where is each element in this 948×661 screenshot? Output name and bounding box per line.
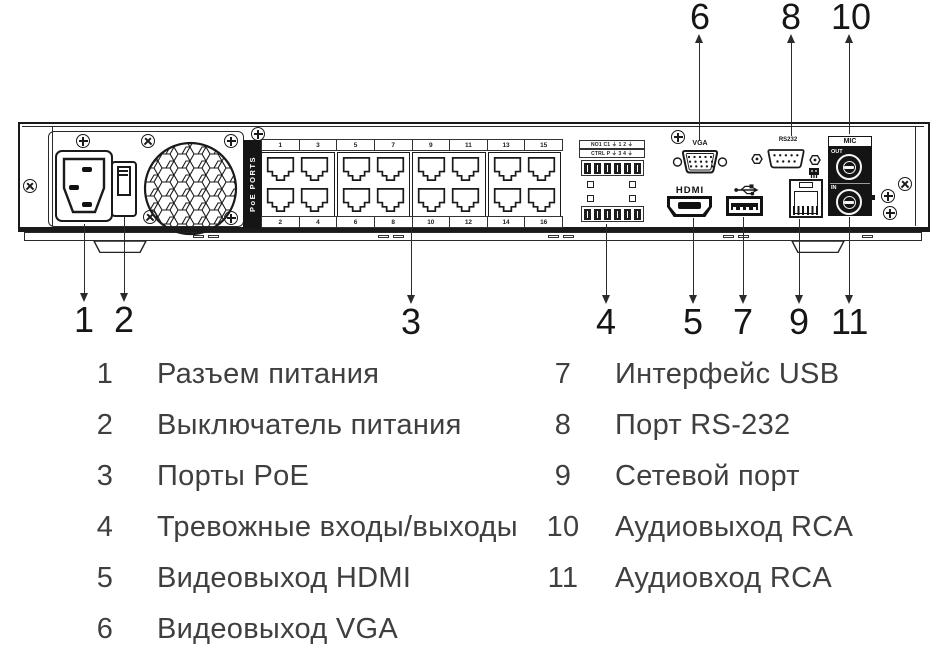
callout-number-9: 9 <box>781 305 817 339</box>
legend-number: 4 <box>85 512 125 542</box>
rs232-label: RS232 <box>770 137 806 143</box>
legend-number: 3 <box>85 461 125 491</box>
rj45-port-icon <box>493 187 522 213</box>
legend-row: 3 Порты PoE <box>85 461 518 491</box>
rj45-port-icon <box>342 156 371 182</box>
legend-label: Порты PoE <box>157 461 309 491</box>
mic-side-nub <box>870 195 875 200</box>
flange-dash <box>393 235 404 238</box>
legend-label: Порт RS-232 <box>615 410 790 440</box>
legend-label: Выключатель питания <box>157 410 462 440</box>
callout-line <box>124 217 125 294</box>
callout-line <box>849 217 850 296</box>
poe-port-label: 6 <box>336 216 375 228</box>
chassis-inner-top-line <box>22 126 924 127</box>
callout-number-7: 7 <box>725 305 761 339</box>
poe-port-label: 13 <box>487 139 526 151</box>
callout-number-11: 11 <box>831 305 867 339</box>
vga-connector <box>672 148 728 176</box>
callout-number-6: 6 <box>682 0 718 34</box>
legend-number: 11 <box>543 563 583 593</box>
legend-number: 8 <box>543 410 583 440</box>
poe-port-label: 8 <box>374 216 413 228</box>
poe-port-group <box>337 152 411 217</box>
poe-port-label: 14 <box>487 216 526 228</box>
rj45-port-icon <box>342 187 371 213</box>
callout-line <box>693 218 694 296</box>
flange-dash <box>563 235 574 238</box>
legend-row: 9 Сетевой порт <box>543 461 853 491</box>
callout-line <box>699 42 700 140</box>
legend-number: 10 <box>543 512 583 542</box>
poe-top-label-row: 1 3 5 7 9 11 13 15 <box>262 139 563 151</box>
usb-port-contacts <box>731 203 758 210</box>
alarm-terminal-strip-bottom <box>581 206 644 222</box>
callout-number-5: 5 <box>675 305 711 339</box>
poe-port-label: 11 <box>449 139 488 151</box>
legend-number: 7 <box>543 359 583 389</box>
poe-port-label: 7 <box>374 139 413 151</box>
hdmi-port <box>667 196 712 217</box>
rj45-port-icon <box>451 156 480 182</box>
legend-number: 1 <box>85 359 125 389</box>
legend-number: 6 <box>85 614 125 644</box>
rubber-foot <box>93 241 147 253</box>
legend-row: 11 Аудиовход RCA <box>543 563 853 593</box>
screw-icon <box>671 130 685 144</box>
audio-out-label: OUT <box>831 149 843 155</box>
rj45-port-icon <box>493 156 522 182</box>
network-icon <box>806 167 822 179</box>
poe-bottom-label-row: 2 4 6 8 10 12 14 16 <box>262 216 563 228</box>
poe-ports-label: PoE PORTS <box>248 156 257 212</box>
legend-row: 5 Видеовыход HDMI <box>85 563 518 593</box>
flange-dash <box>378 235 389 238</box>
alarm-terminal-strip-top <box>581 160 644 176</box>
legend-row: 8 Порт RS-232 <box>543 410 853 440</box>
mic-label: MIC <box>828 136 872 147</box>
power-pin-slot <box>69 185 79 190</box>
usb-port <box>726 196 763 216</box>
callout-number-2: 2 <box>106 303 142 337</box>
legend-number: 9 <box>543 461 583 491</box>
rj45-port-icon <box>300 156 329 182</box>
hdmi-port-slot <box>678 202 701 209</box>
legend-label: Тревожные входы/выходы <box>157 512 518 542</box>
callout-line <box>799 219 800 296</box>
ethernet-latch <box>799 182 813 188</box>
legend-label: Интерфейс USB <box>615 359 839 389</box>
legend-label: Видеовыход VGA <box>157 614 398 644</box>
poe-port-label: 10 <box>412 216 451 228</box>
terminal-screw <box>587 195 594 202</box>
hdmi-label: HDMI <box>668 185 712 196</box>
usb-icon <box>733 182 759 196</box>
rj45-port-icon <box>417 187 446 213</box>
callout-number-4: 4 <box>588 305 624 339</box>
callout-line <box>606 224 607 296</box>
callout-line <box>791 42 792 136</box>
ethernet-port <box>789 179 823 218</box>
callout-line <box>411 229 412 296</box>
legend-number: 2 <box>85 410 125 440</box>
poe-port-bank <box>261 152 563 217</box>
flange-dash <box>738 235 749 238</box>
callout-number-8: 8 <box>773 0 809 34</box>
poe-port-label: 15 <box>524 139 563 151</box>
rca-slot <box>844 166 854 169</box>
legend-label: Разъем питания <box>157 359 379 389</box>
nvr-rear-panel-figure: PoE PORTS 1 3 5 7 9 11 13 15 <box>0 0 948 661</box>
legend-label: Сетевой порт <box>615 461 800 491</box>
rj45-port-icon <box>376 156 405 182</box>
ethernet-pins <box>793 206 819 215</box>
callout-line <box>84 224 85 294</box>
legend-left-column: 1 Разъем питания 2 Выключатель питания 3… <box>85 359 518 661</box>
fan-grille <box>142 140 239 237</box>
legend-number: 5 <box>85 563 125 593</box>
flange-dash <box>723 235 734 238</box>
legend-row: 10 Аудиовыход RCA <box>543 512 853 542</box>
screw-icon <box>881 189 895 203</box>
legend-row: 1 Разъем питания <box>85 359 518 389</box>
rj45-port-icon <box>266 187 295 213</box>
chassis-right-fold <box>915 127 916 226</box>
rj45-port-icon <box>266 156 295 182</box>
power-pin-slot <box>82 167 92 172</box>
legend-label: Аудиовыход RCA <box>615 512 853 542</box>
rj45-port-icon <box>527 187 556 213</box>
rocker-line <box>119 174 128 176</box>
poe-port-label: 1 <box>261 139 300 151</box>
audio-in-label: IN <box>831 185 837 191</box>
rj45-port-icon <box>300 187 329 213</box>
legend-row: 2 Выключатель питания <box>85 410 518 440</box>
poe-port-group <box>261 152 335 217</box>
poe-port-label: 12 <box>449 216 488 228</box>
rj45-port-icon <box>417 156 446 182</box>
vga-label: VGA <box>685 140 715 147</box>
legend-right-column: 7 Интерфейс USB 8 Порт RS-232 9 Сетевой … <box>543 359 853 614</box>
poe-port-label: 9 <box>412 139 451 151</box>
poe-port-label: 4 <box>299 216 338 228</box>
legend-label: Видеовыход HDMI <box>157 563 411 593</box>
legend-row: 7 Интерфейс USB <box>543 359 853 389</box>
rj45-port-icon <box>527 156 556 182</box>
alarm-label-row2: CTRL P ⏚ 3 4 ⏚ <box>579 149 645 158</box>
rca-audio-out <box>836 154 862 180</box>
power-pin-slot <box>82 202 92 207</box>
poe-port-label: 16 <box>524 216 563 228</box>
legend-row: 6 Видеовыход VGA <box>85 614 518 644</box>
callout-number-1: 1 <box>66 303 102 337</box>
callout-number-3: 3 <box>393 305 429 339</box>
poe-ports-bar: PoE PORTS <box>243 140 262 228</box>
poe-port-label: 3 <box>299 139 338 151</box>
rj45-port-icon <box>451 187 480 213</box>
legend-row: 4 Тревожные входы/выходы <box>85 512 518 542</box>
callout-line <box>849 42 850 134</box>
terminal-screw <box>629 181 636 188</box>
rocker-line <box>119 170 128 172</box>
terminal-screw <box>629 195 636 202</box>
flange-dash <box>548 235 559 238</box>
legend-label: Аудиовход RCA <box>615 563 832 593</box>
hdmi-port-inner <box>670 199 709 214</box>
callout-line <box>743 217 744 296</box>
poe-port-group <box>412 152 486 217</box>
terminal-screw <box>587 181 594 188</box>
callout-number-10: 10 <box>831 0 867 34</box>
poe-port-label: 5 <box>336 139 375 151</box>
rj45-port-icon <box>376 187 405 213</box>
rca-slot <box>844 201 854 204</box>
flange-dash <box>862 235 873 238</box>
poe-port-label: 2 <box>261 216 300 228</box>
poe-port-group <box>488 152 562 217</box>
screw-icon <box>883 206 897 220</box>
rca-audio-in <box>836 189 862 215</box>
